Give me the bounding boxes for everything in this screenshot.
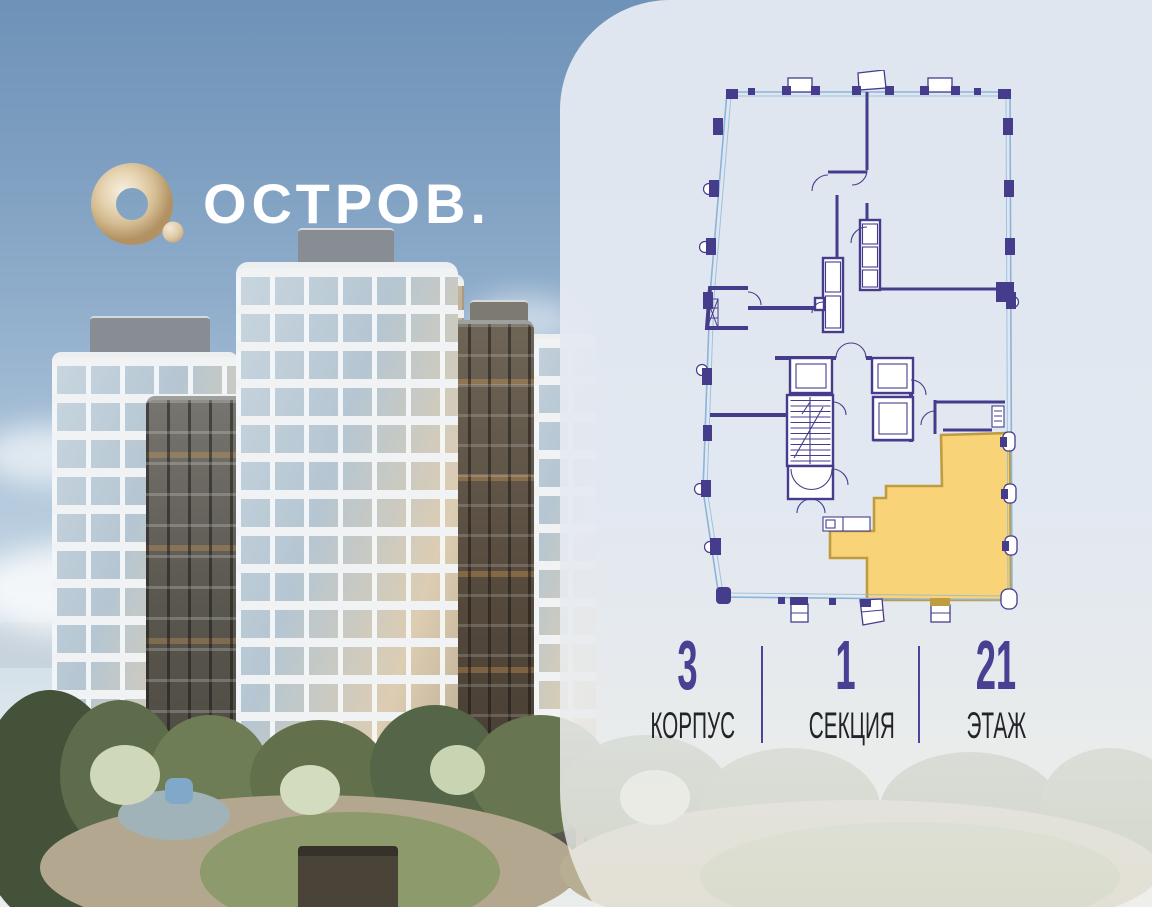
stat-divider [918, 646, 920, 743]
logo-o-icon [90, 162, 186, 250]
kitchen-counter [823, 517, 870, 531]
stat-section-label: СЕКЦИЯ [809, 707, 895, 744]
stat-building-value: 3 [677, 630, 697, 700]
blossom-tree [280, 765, 340, 815]
blossom-tree [90, 745, 160, 805]
stat-floor: 21 ЭТАЖ [926, 630, 1066, 744]
pavilion [298, 846, 398, 907]
playground-slide [165, 778, 193, 804]
blossom-tree [430, 745, 485, 795]
plan-core-rooms [787, 220, 913, 499]
floor-plan [690, 70, 1040, 630]
stat-building-label: КОРПУС [650, 707, 735, 744]
stat-divider [761, 646, 763, 743]
brand-name: ОСТРОВ. [203, 176, 491, 232]
stat-section: 1 СЕКЦИЯ [775, 630, 915, 744]
stat-floor-value: 21 [976, 630, 1016, 700]
stat-building: 3 КОРПУС [617, 630, 757, 744]
plan-walls [707, 92, 1005, 442]
stat-section-value: 1 [835, 630, 855, 700]
door-arcs [748, 170, 935, 513]
page: ОСТРОВ. [0, 0, 1152, 907]
stat-floor-label: ЭТАЖ [966, 707, 1026, 744]
